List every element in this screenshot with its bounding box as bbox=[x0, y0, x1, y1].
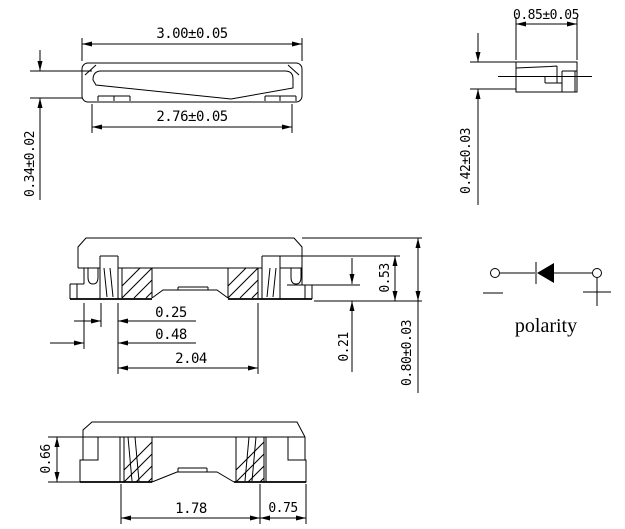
bottom-right-terminal bbox=[266, 437, 306, 482]
dim-section-step-height: 0.53 bbox=[378, 263, 393, 292]
dim-side-width: 0.85±0.05 bbox=[513, 8, 579, 23]
dim-section-total-height: 0.80±0.03 bbox=[400, 320, 415, 386]
dim-bottom-terminal-height: 0.66 bbox=[39, 444, 54, 473]
section-view: 0.25 0.48 2.04 0.53 0.21 0.80±0.03 bbox=[50, 238, 422, 393]
technical-drawing-page: 3.00±0.05 2.76±0.05 0.34±0.02 0.85±0.05 … bbox=[0, 0, 625, 529]
dim-section-span: 2.04 bbox=[175, 351, 207, 367]
bottom-hatch-lines bbox=[124, 442, 264, 482]
section-mold-block-edges bbox=[122, 268, 258, 298]
section-lens-plate-outline bbox=[78, 238, 302, 268]
polarity-label: polarity bbox=[515, 315, 577, 337]
dim-section-lead-width: 0.48 bbox=[155, 327, 187, 343]
front-view: 3.00±0.05 2.76±0.05 0.34±0.02 bbox=[23, 26, 302, 200]
front-corner-chamfers bbox=[85, 65, 299, 75]
cathode-terminal-circle bbox=[491, 269, 500, 278]
dim-front-width: 3.00±0.05 bbox=[156, 26, 227, 42]
section-left-lead bbox=[70, 268, 98, 299]
dim-front-height: 0.34±0.02 bbox=[23, 131, 38, 197]
bottom-view: 0.66 1.78 0.75 bbox=[39, 422, 306, 524]
dim-section-inner-step: 0.25 bbox=[155, 305, 187, 321]
bottom-lens-plate-outline bbox=[83, 422, 305, 460]
plus-mark-icon bbox=[583, 278, 611, 306]
diode-triangle-icon bbox=[537, 263, 554, 283]
front-terminal-tabs bbox=[98, 96, 296, 101]
dim-front-inner-width: 2.76±0.05 bbox=[156, 109, 227, 125]
section-right-lead bbox=[291, 268, 312, 299]
polarity-symbol: polarity bbox=[483, 262, 611, 337]
anode-terminal-circle bbox=[593, 269, 602, 278]
dim-bottom-pad-width: 0.75 bbox=[268, 501, 297, 516]
side-view: 0.85±0.05 0.42±0.03 bbox=[459, 8, 592, 205]
side-dimension-lines bbox=[470, 17, 577, 205]
section-bottom-dimension-lines bbox=[50, 303, 258, 374]
dim-side-height: 0.42±0.03 bbox=[459, 128, 474, 194]
section-draft-lines bbox=[104, 268, 276, 297]
drawing-canvas: 3.00±0.05 2.76±0.05 0.34±0.02 0.85±0.05 … bbox=[0, 0, 625, 529]
bottom-left-terminal bbox=[80, 437, 120, 482]
section-hatch-lines bbox=[122, 268, 258, 298]
dim-section-foot-height: 0.21 bbox=[337, 332, 352, 361]
front-lens-outline bbox=[93, 71, 293, 99]
section-dimension-arrows bbox=[74, 238, 421, 371]
dim-bottom-pad-span: 1.78 bbox=[175, 501, 207, 517]
section-cavity-and-die bbox=[152, 287, 228, 298]
side-lead-details bbox=[498, 66, 592, 92]
bottom-cavity-and-die bbox=[152, 468, 234, 482]
